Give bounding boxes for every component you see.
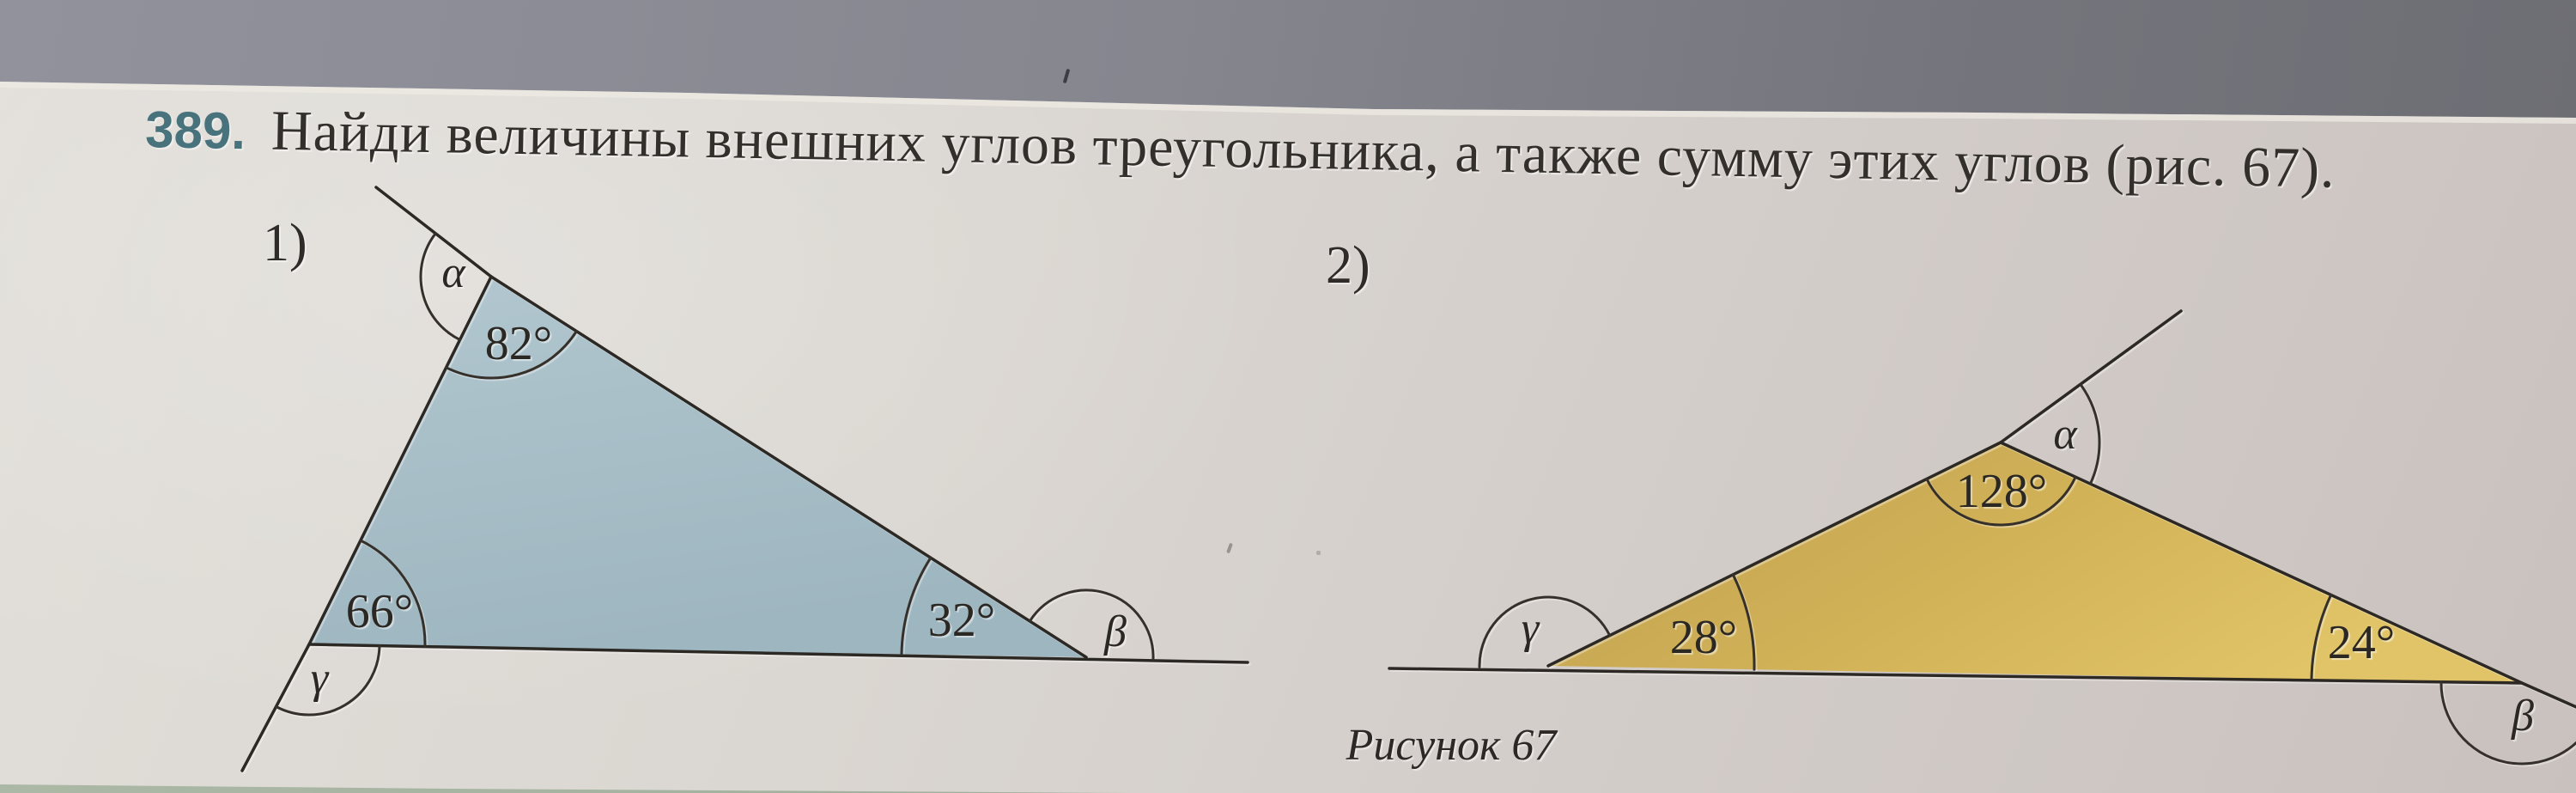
fig1-top-exterior-angle-label: α [441, 248, 466, 297]
fig1-bottom-left-exterior-angle-label: γ [311, 654, 330, 703]
textbook-page-photo: 389.Найди величины внешних углов треугол… [0, 0, 2576, 793]
figure-67-drawing: α 82° 66° γ 32° β α 128° γ 28° 24° β [0, 0, 2576, 793]
triangle2-beta-angle-arc [2441, 681, 2576, 764]
figure-caption: Рисунок 67 [1314, 720, 1589, 771]
fig2-top-interior-angle-label: 128° [1956, 465, 2047, 518]
fig1-bottom-right-interior-angle-label: 32° [928, 594, 995, 647]
fig1-bottom-right-exterior-angle-label: β [1103, 607, 1127, 656]
fig1-top-interior-angle-label: 82° [485, 317, 552, 370]
fig2-bottom-right-exterior-angle-label: β [2511, 692, 2534, 741]
fig2-bottom-right-interior-angle-label: 24° [2328, 616, 2395, 669]
fig2-bottom-left-exterior-angle-label: γ [1522, 604, 1540, 653]
triangle2-alpha-angle-arc [2081, 385, 2099, 484]
fig2-top-exterior-angle-label: α [2053, 410, 2078, 459]
triangle2-side-extension-top [2001, 311, 2181, 442]
fig1-bottom-left-interior-angle-label: 66° [346, 585, 413, 638]
triangle1-side-extension-top [376, 187, 491, 277]
fig2-bottom-left-interior-angle-label: 28° [1670, 611, 1737, 664]
